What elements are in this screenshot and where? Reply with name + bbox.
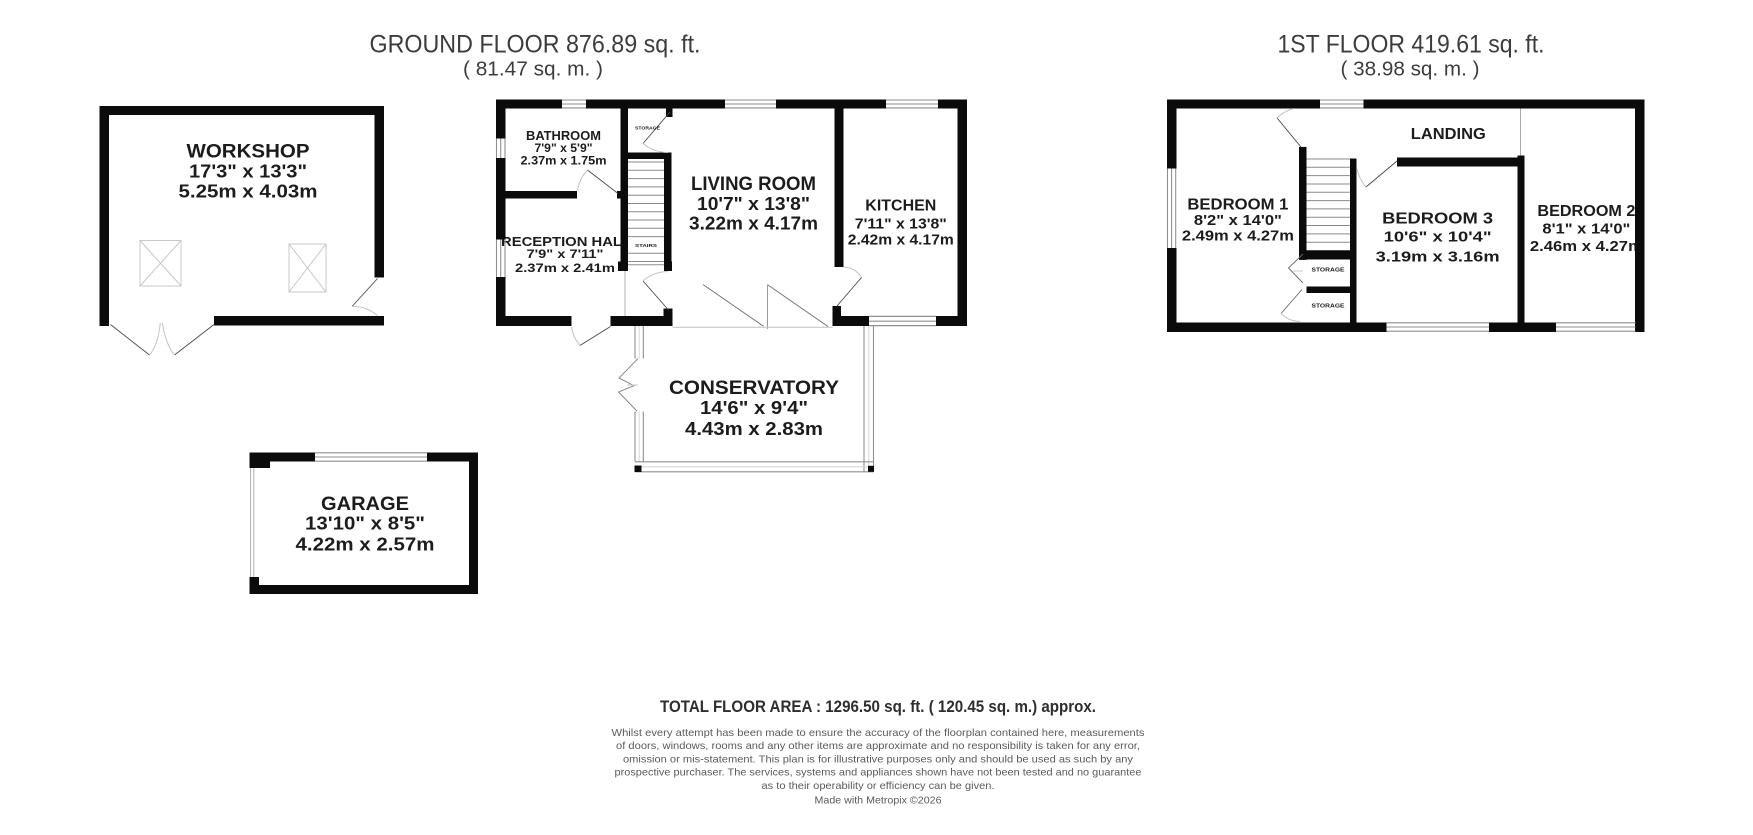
svg-text:as to their operability or eff: as to their operability or efficiency ca… [762,780,995,792]
svg-text:prospective purchaser. The ser: prospective purchaser. The services, sys… [615,767,1142,779]
svg-text:4.22m x 2.57m: 4.22m x 2.57m [296,534,435,554]
svg-text:GROUND FLOOR 876.89 sq. ft.: GROUND FLOOR 876.89 sq. ft. [370,31,701,59]
svg-text:2.37m x 2.41m: 2.37m x 2.41m [515,261,615,275]
svg-text:3.22m x 4.17m: 3.22m x 4.17m [689,213,818,233]
svg-text:8'2" x 14'0": 8'2" x 14'0" [1194,212,1282,229]
svg-text:LANDING: LANDING [1411,126,1486,143]
svg-text:STAIRS: STAIRS [635,243,657,248]
svg-text:1ST FLOOR 419.61 sq. ft.: 1ST FLOOR 419.61 sq. ft. [1278,31,1545,59]
svg-text:10'6" x 10'4": 10'6" x 10'4" [1384,229,1492,246]
svg-text:omission or mis-statement. Thi: omission or mis-statement. This plan is … [623,753,1134,765]
svg-text:Made with Metropix ©2026: Made with Metropix ©2026 [815,794,942,806]
svg-text:4.43m x 2.83m: 4.43m x 2.83m [685,419,823,439]
svg-text:8'1" x 14'0": 8'1" x 14'0" [1542,220,1630,237]
svg-text:( 38.98 sq. m. ): ( 38.98 sq. m. ) [1341,58,1480,80]
svg-text:BEDROOM 2: BEDROOM 2 [1537,203,1635,220]
svg-text:2.42m x 4.17m: 2.42m x 4.17m [848,231,954,248]
svg-text:( 81.47 sq. m. ): ( 81.47 sq. m. ) [463,58,603,80]
svg-text:CONSERVATORY: CONSERVATORY [669,378,839,399]
svg-text:STORAGE: STORAGE [635,125,660,130]
svg-text:of doors, windows, rooms and a: of doors, windows, rooms and any other i… [616,740,1140,752]
svg-text:KITCHEN: KITCHEN [865,198,936,215]
svg-text:7'11" x 13'8": 7'11" x 13'8" [855,215,947,232]
svg-text:BEDROOM 3: BEDROOM 3 [1382,210,1493,227]
svg-text:GARAGE: GARAGE [321,494,409,515]
svg-text:WORKSHOP: WORKSHOP [187,142,310,163]
svg-text:2.46m x 4.27m: 2.46m x 4.27m [1530,238,1643,255]
svg-text:2.37m x 1.75m: 2.37m x 1.75m [521,153,607,167]
svg-text:13'10" x 8'5": 13'10" x 8'5" [305,513,425,533]
svg-text:2.49m x 4.27m: 2.49m x 4.27m [1182,228,1294,245]
svg-text:STORAGE: STORAGE [1312,268,1346,274]
svg-text:17'3" x 13'3": 17'3" x 13'3" [189,161,307,181]
svg-text:Whilst every attempt has been: Whilst every attempt has been made to en… [612,727,1145,739]
svg-text:LIVING ROOM: LIVING ROOM [691,174,816,195]
svg-text:7'9" x 7'11": 7'9" x 7'11" [527,247,604,261]
svg-text:STORAGE: STORAGE [1312,304,1346,310]
svg-text:TOTAL FLOOR AREA : 1296.50 sq.: TOTAL FLOOR AREA : 1296.50 sq. ft. ( 120… [660,698,1096,716]
svg-text:3.19m x 3.16m: 3.19m x 3.16m [1376,248,1500,265]
svg-text:10'7" x 13'8": 10'7" x 13'8" [697,194,810,214]
svg-text:5.25m x 4.03m: 5.25m x 4.03m [179,181,318,201]
svg-text:14'6" x 9'4": 14'6" x 9'4" [700,398,808,418]
